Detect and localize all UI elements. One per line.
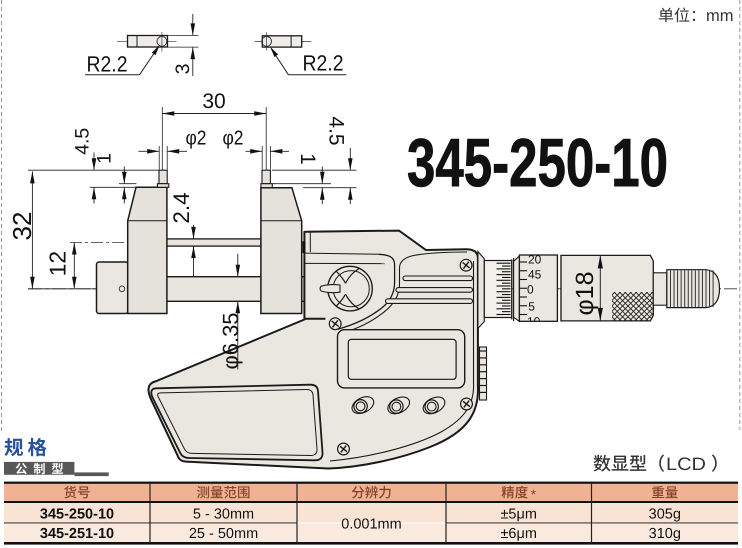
svg-text:1: 1 <box>296 153 319 165</box>
svg-text:4.5: 4.5 <box>72 128 94 155</box>
svg-text:0.001mm: 0.001mm <box>341 516 401 532</box>
svg-text:45: 45 <box>528 268 542 282</box>
svg-text:R2.2: R2.2 <box>87 52 128 77</box>
svg-text:25 - 50mm: 25 - 50mm <box>189 526 258 542</box>
svg-text:LCD: LCD <box>666 454 706 474</box>
svg-text:φ2: φ2 <box>186 128 207 150</box>
svg-text:φ2: φ2 <box>223 128 244 150</box>
svg-text:3: 3 <box>172 64 194 75</box>
svg-text:5: 5 <box>528 300 535 314</box>
svg-text:345-250-10: 345-250-10 <box>407 125 668 201</box>
svg-text:0: 0 <box>527 283 534 297</box>
svg-text:345-251-10: 345-251-10 <box>40 526 114 542</box>
svg-text:±5μm: ±5μm <box>500 506 536 522</box>
svg-text:12: 12 <box>45 251 71 277</box>
svg-text:305g: 305g <box>649 506 681 522</box>
svg-text:1: 1 <box>94 153 116 164</box>
svg-text:310g: 310g <box>649 526 681 542</box>
svg-text:*: * <box>531 487 537 502</box>
svg-text:mm: mm <box>706 7 734 25</box>
svg-text:±6μm: ±6μm <box>500 526 536 542</box>
svg-text:R2.2: R2.2 <box>303 51 344 76</box>
svg-text:345-250-10: 345-250-10 <box>40 506 114 522</box>
svg-text:φ18: φ18 <box>571 271 599 315</box>
svg-text:φ6.35: φ6.35 <box>218 312 243 369</box>
svg-text:5 - 30mm: 5 - 30mm <box>193 506 254 522</box>
svg-text:30: 30 <box>202 90 225 113</box>
svg-text:2.4: 2.4 <box>169 192 194 223</box>
svg-text:4.5: 4.5 <box>325 116 348 145</box>
